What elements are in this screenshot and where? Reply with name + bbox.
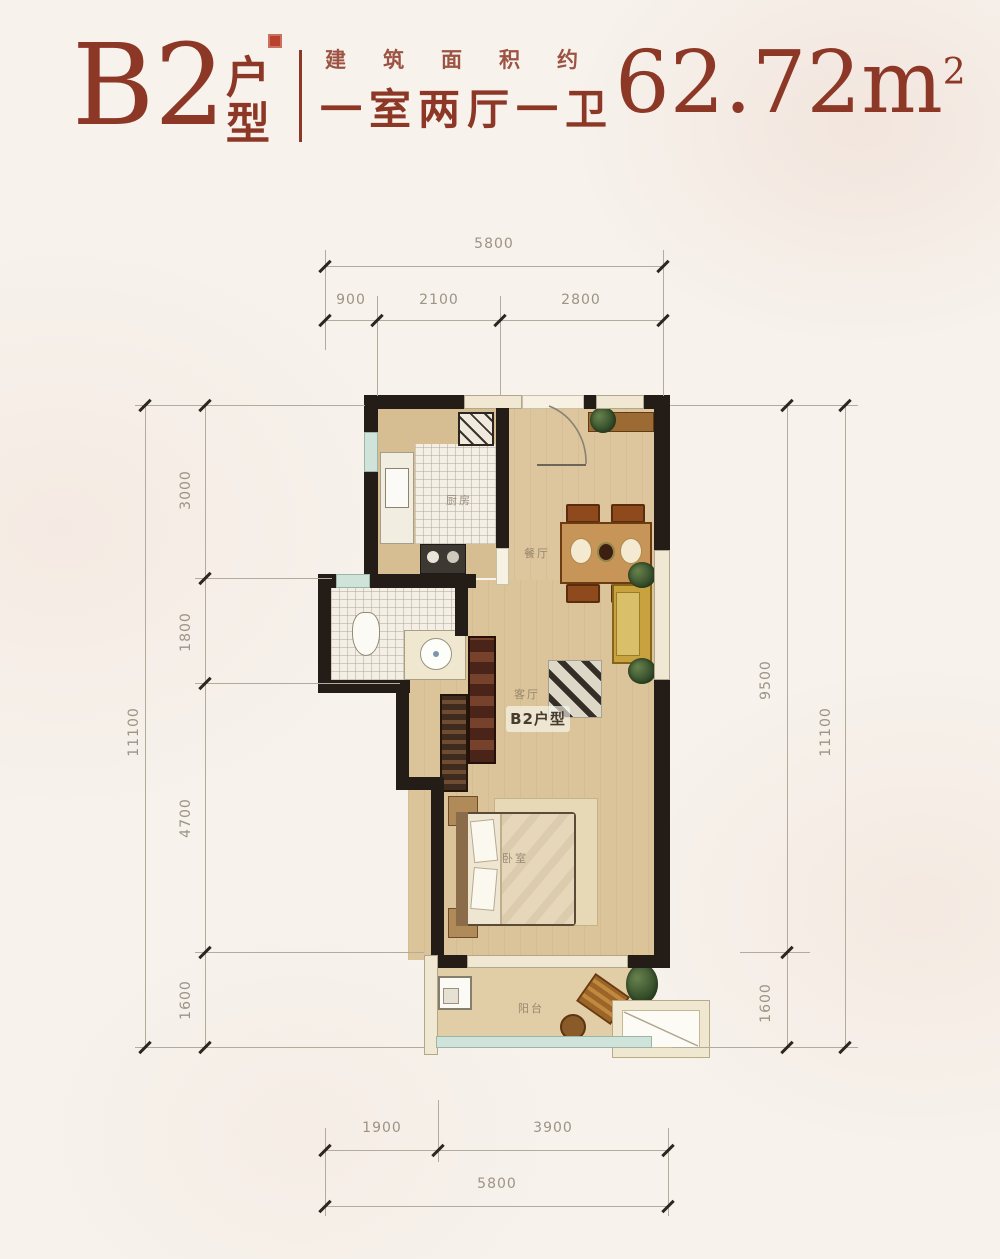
dim-left-inner-3: 1600 [178,970,194,1030]
dining-chair-bottom-left [566,584,600,603]
wall-kitchen-left [364,395,378,585]
kitchen-door-opening [496,548,509,585]
dim-top-inner-2: 2800 [538,292,624,308]
dim-right-outer: 11100 [818,697,834,767]
label-dining: 餐厅 [524,545,550,561]
dim-right-inner-0: 9500 [758,650,774,710]
window-top-right [596,395,644,409]
dining-plate-left [570,538,592,564]
bed-pillow-top [470,819,498,863]
dimension-line [500,296,501,396]
dining-chair-top-right [611,504,645,523]
dining-plate-right [620,538,642,564]
dimension-line [195,952,424,953]
dining-chair-top-left [566,504,600,523]
stove-burner-right [447,551,459,563]
wall-right-bottom [654,680,670,968]
side-cabinet [440,694,468,792]
tv-cabinet [468,636,496,764]
entry-plant [590,407,616,433]
dimension-line [740,952,810,953]
area-value: 62.72m2 [615,36,966,131]
balcony-door-window [467,955,628,968]
label-balcony: 阳台 [518,1000,544,1016]
unit-code: B2 [72,30,226,142]
dimension-line [377,296,378,396]
dim-left-inner-1: 1800 [178,602,194,662]
entry-door-opening [522,395,584,409]
dimension-line [195,578,332,579]
dim-right-inner-1: 1600 [758,973,774,1033]
area-unit: m [861,33,943,133]
wall-right-top [654,395,670,550]
dimension-line [670,405,858,406]
dim-left-inner-0: 3000 [178,460,194,520]
area-number: 62.72 [615,33,861,133]
wall-top-left [364,395,464,409]
dim-top-inner-1: 2100 [396,292,482,308]
red-seal-icon [268,34,282,48]
room-layout: 一室两厅一卫 [320,76,614,137]
dimension-line [438,1100,439,1162]
sofa-seat [616,592,640,656]
area-prefix: 建筑面积约 [325,44,615,74]
bed-headboard [456,812,468,926]
dim-bottom-inner-1: 3900 [518,1120,588,1136]
wall-living-left [396,680,409,790]
dim-left-inner-2: 4700 [178,788,194,848]
dining-centerpiece [599,544,613,560]
floorplan-page: B2 户型 建筑面积约 一室两厅一卫 62.72m2 [0,0,1000,1259]
bed-pillow-bottom [470,867,498,911]
dimension-line [325,1206,668,1207]
label-kitchen: 厨房 [446,492,472,508]
dimension-line [145,405,146,1047]
fridge [458,412,494,446]
area-exponent: 2 [943,52,966,93]
unit-type-label: 户型 [220,54,265,146]
stove-burner-left [427,551,439,563]
wall-bathroom-right [455,588,468,636]
dim-left-outer: 11100 [126,697,142,767]
window-bathroom [336,574,370,588]
toilet [352,612,380,656]
living-plant-bottom [628,658,656,684]
dimension-line [672,1047,858,1048]
washing-machine-door [443,988,459,1004]
living-plant-top [628,562,656,588]
balcony-glass-rail [436,1036,652,1048]
dimension-line [325,1150,668,1151]
kitchen-sink [385,468,409,508]
dimension-line [195,683,400,684]
dimension-line [325,266,663,267]
wall-top-mid [584,395,596,409]
dim-bottom-outer: 5800 [462,1176,532,1192]
dimension-line [845,405,846,1047]
dimension-line [135,1047,424,1048]
window-top-kitchen [464,395,522,409]
label-bedroom: 卧室 [502,850,528,866]
dimension-line [135,405,365,406]
header-divider [299,50,302,142]
wall-bathroom-left [318,574,331,692]
label-living: 客厅 [514,686,540,702]
window-living-right [654,550,670,680]
wall-kitchen-divider [496,408,509,548]
plan-watermark: B2户型 [506,706,570,732]
dim-top-inner-0: 900 [329,292,373,308]
balcony-plant [626,964,658,1004]
wall-bedroom-left [431,777,444,968]
window-kitchen-left [364,432,378,472]
bed-blanket [500,814,574,924]
washbasin-drain [433,651,439,657]
dim-top-outer: 5800 [464,236,524,252]
dimension-line [663,250,664,396]
dim-bottom-inner-0: 1900 [347,1120,417,1136]
